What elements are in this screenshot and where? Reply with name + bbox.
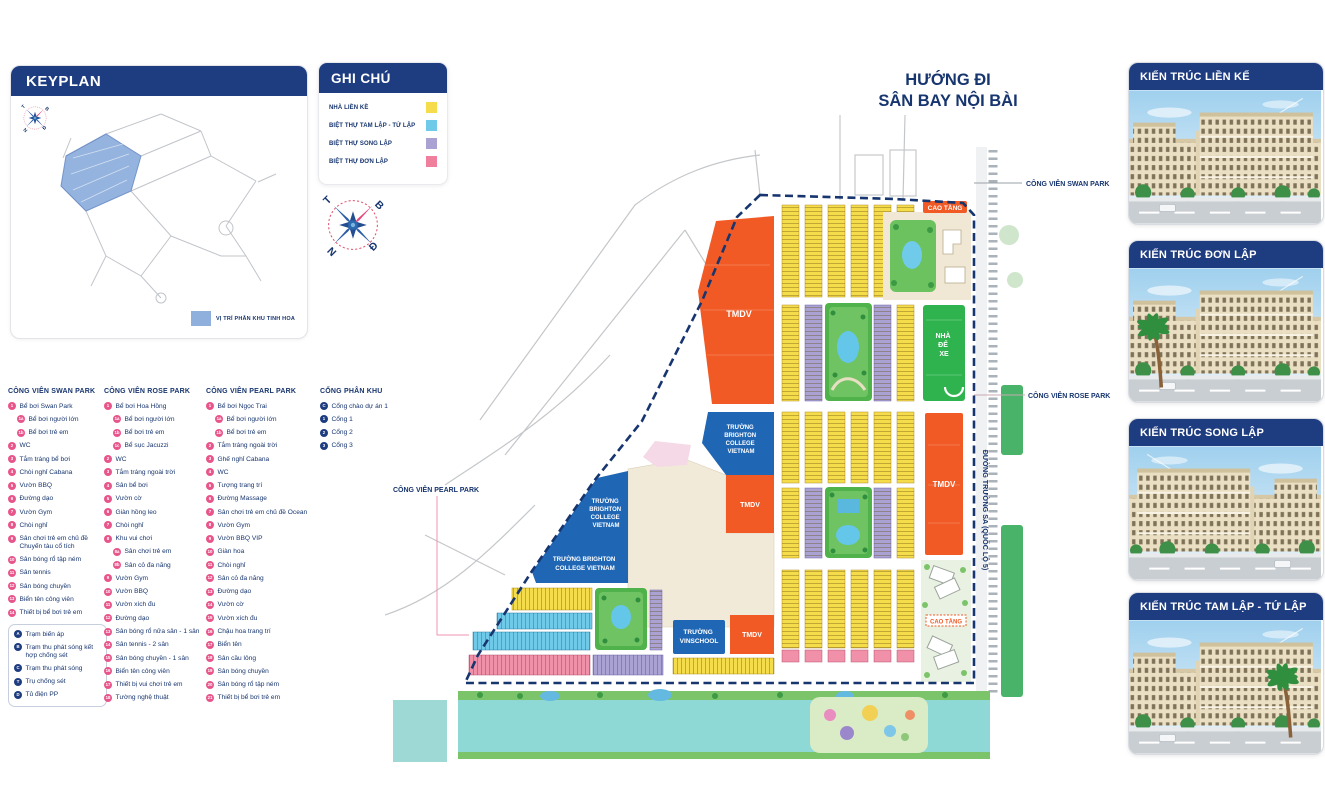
legend-item: ATrạm biến áp (14, 630, 102, 638)
legend-item-label: Vườn Gym (116, 574, 149, 582)
legend-item-badge: D (14, 691, 22, 699)
keyplan-legend-label: VỊ TRÍ PHÂN KHU TINH HOA (216, 316, 295, 322)
legend-item-badge: 16 (206, 628, 214, 636)
legend-column-swan-park: CÔNG VIÊN SWAN PARK 1Bể bơi Swan Park1aB… (8, 388, 102, 707)
legend-item-badge: 12 (8, 582, 16, 590)
legend-item: 17Thiết bị vui chơi trẻ em (104, 681, 204, 689)
legend-item: 9Sân chơi trẻ em chủ đề Chuyến tàu cổ tí… (8, 535, 102, 551)
pearl-park-leader-line (437, 496, 469, 635)
highway-name-label: ĐƯỜNG TRƯỜNG SA (QUỐC LỘ 5) (981, 450, 991, 571)
legend-item-badge: 4 (104, 482, 112, 490)
legend-column-title: CÔNG VIÊN PEARL PARK (206, 388, 318, 395)
legend-item-label: Bể bơi trẻ em (29, 429, 69, 437)
legend-item-label: Cổng 1 (332, 415, 353, 423)
legend-item-label: Bể bơi người lớn (227, 415, 277, 423)
legend-item-badge: 2 (104, 455, 112, 463)
legend-item: 19Sân bóng chuyền (206, 667, 318, 675)
keyplan-legend: VỊ TRÍ PHÂN KHU TINH HOA (191, 311, 295, 326)
legend-item-badge: 17 (206, 641, 214, 649)
legend-item-badge: 7 (8, 508, 16, 516)
legend-item: 17Biển tên (206, 641, 318, 649)
legend-item-label: Ghế nghỉ Cabana (218, 455, 270, 463)
legend-item: 3Tắm tráng ngoài trời (104, 468, 204, 476)
legend-item: 8bSân cỏ đa năng (113, 561, 204, 569)
legend-item-label: Thiết bị vui chơi trẻ em (116, 681, 183, 689)
legend-item-label: Vườn xích đu (218, 614, 258, 622)
legend-item: 5Tượng trang trí (206, 482, 318, 490)
architecture-card-title: KIẾN TRÚC SONG LẬP (1140, 427, 1264, 439)
legend-item: 1aBể bơi người lớn (215, 415, 318, 423)
legend-item-label: Sân tennis - 2 sân (116, 641, 169, 649)
legend-item-label: Đường Massage (218, 495, 267, 503)
legend-item: 11Chòi nghỉ (206, 561, 318, 569)
legend-item: 16Chậu hoa trang trí (206, 628, 318, 636)
legend-item-badge: 16 (104, 667, 112, 675)
legend-item-label: Vườn Gym (218, 521, 251, 529)
legend-item: 4Chòi nghỉ Cabana (8, 468, 102, 476)
legend-item: 1Bể bơi Swan Park (8, 402, 102, 410)
tree-cluster (999, 225, 1019, 245)
legend-item-label: Tủ điện PP (26, 691, 59, 699)
legend-item: TTrụ chống sét (14, 678, 102, 686)
legend-item: 1cBể sục Jacuzzi (113, 442, 204, 450)
legend-item: 18Sân cầu lông (206, 654, 318, 662)
legend-item-badge: 1b (17, 429, 25, 437)
legend-item-badge: 2 (320, 429, 328, 437)
cao-tang-label-south: CAO TẦNG (930, 619, 962, 626)
pocket-park-southwest (595, 588, 647, 650)
legend-item: 14Vườn cờ (206, 601, 318, 609)
legend-item-label: Sân cỏ đa năng (218, 574, 264, 582)
architecture-card-title: KIẾN TRÚC LIỀN KẾ (1140, 71, 1250, 83)
central-park-south (825, 487, 872, 558)
legend-item-label: Tường nghệ thuật (116, 694, 169, 702)
legend-list: 1Bể bơi Swan Park1aBể bơi người lớn1bBể … (8, 402, 102, 617)
legend-item-badge: 1b (113, 429, 121, 437)
legend-item-badge: 19 (206, 667, 214, 675)
architecture-card-header: KIẾN TRÚC LIỀN KẾ (1129, 63, 1323, 90)
legend-item-badge: B (14, 643, 22, 651)
legend-item-label: Trạm thu phát sóng (26, 664, 83, 672)
legend-item-label: Giàn hồng leo (116, 508, 157, 516)
legend-item-label: Sân tennis (20, 569, 51, 577)
architecture-card-header: KIẾN TRÚC ĐƠN LẬP (1129, 241, 1323, 268)
legend-item-badge: 5 (104, 495, 112, 503)
legend-item-label: Vườn xích đu (116, 601, 156, 609)
tree-cluster (1007, 272, 1023, 288)
legend-item-label: Trạm biến áp (26, 630, 65, 638)
legend-item: 20Sân bóng rổ tập ném (206, 681, 318, 689)
legend-item-badge: 1a (215, 415, 223, 423)
central-park-north (825, 303, 872, 401)
legend-item-badge: 1b (215, 429, 223, 437)
legend-item-label: Vườn BBQ (20, 482, 53, 490)
legend-row-label: BIỆT THỰ SONG LẬP (329, 141, 392, 147)
legend-item-badge: T (14, 678, 22, 686)
legend-item-badge: 12 (206, 574, 214, 582)
architecture-render (1129, 268, 1321, 402)
legend-item-label: Bể bơi Hoa Hồng (116, 402, 167, 410)
legend-item-badge: 10 (8, 556, 16, 564)
masterplan-poster: B T N Đ (0, 0, 1325, 800)
legend-item-badge: A (14, 630, 22, 638)
masterplan-map: TMDV (385, 55, 1120, 775)
legend-item: DTủ điện PP (14, 691, 102, 699)
legend-item: 6Đường dạo (8, 495, 102, 503)
water-plot (393, 700, 447, 762)
architecture-card-don-lap: KIẾN TRÚC ĐƠN LẬP (1128, 240, 1324, 403)
legend-item-label: Sân bóng rổ tập ném (20, 556, 82, 564)
legend-item-label: Cổng 3 (332, 442, 353, 450)
legend-item-badge: 10 (104, 588, 112, 596)
legend-item-badge: 13 (206, 588, 214, 596)
legend-row-label: BIỆT THỰ ĐƠN LẬP (329, 159, 388, 165)
legend-column-rose-park: CÔNG VIÊN ROSE PARK 1Bể bơi Hoa Hồng1aBể… (104, 388, 204, 707)
legend-item: 4Sân bể bơi (104, 482, 204, 490)
east-green-strip (1001, 525, 1023, 697)
legend-item-badge: 3 (104, 468, 112, 476)
legend-item: 12Đường dạo (104, 614, 204, 622)
legend-item: 13Biển tên công viên (8, 595, 102, 603)
legend-item: 13Sân bóng rổ nửa sân - 1 sân (104, 628, 204, 636)
legend-item: 2WC (104, 455, 204, 463)
legend-item: CTrạm thu phát sóng (14, 664, 102, 672)
legend-item-label: Sân bóng chuyền (20, 582, 71, 590)
legend-item-badge: 18 (206, 654, 214, 662)
legend-item: 9Vườn Gym (104, 574, 204, 582)
tmdv-label: TMDV (740, 502, 760, 509)
legend-item: 1bBể bơi trẻ em (113, 429, 204, 437)
legend-item-badge: 1a (113, 415, 121, 423)
legend-item: 14Thiết bị bể bơi trẻ em (8, 609, 102, 617)
legend-item: 8aSân chơi trẻ em (113, 548, 204, 556)
legend-item-label: Tắm tráng ngoài trời (218, 442, 278, 450)
legend-item-label: Thiết bị bể bơi trẻ em (218, 694, 281, 702)
utilities-legend-box: ATrạm biến ápBTrạm thu phát sóng kết hợp… (8, 624, 107, 707)
pearl-park-callout: CÔNG VIÊN PEARL PARK (393, 485, 479, 494)
legend-item: 16Biển tên công viên (104, 667, 204, 675)
legend-item-badge: 7 (206, 508, 214, 516)
legend-item-badge: 3 (8, 455, 16, 463)
legend-list: 1Bể bơi Ngọc Trai1aBể bơi người lớn1bBể … (206, 402, 318, 702)
legend-list: 1Bể bơi Hoa Hồng1aBể bơi người lớn1bBể b… (104, 402, 204, 702)
legend-item-badge: 20 (206, 681, 214, 689)
legend-item: 1bBể bơi trẻ em (17, 429, 102, 437)
legend-item-badge: 8 (206, 521, 214, 529)
legend-item: 4WC (206, 468, 318, 476)
canal-park (393, 689, 990, 762)
legend-item: 8Khu vui chơi (104, 535, 204, 543)
legend-item-badge: 8a (113, 548, 121, 556)
legend-item-label: Sân bóng rổ tập ném (218, 681, 280, 689)
legend-item-badge: C (14, 664, 22, 672)
architecture-card-header: KIẾN TRÚC TAM LẬP - TỨ LẬP (1129, 593, 1323, 620)
legend-item-badge: 1 (104, 402, 112, 410)
legend-item: 11Vườn xích đu (104, 601, 204, 609)
legend-item: 18Tường nghệ thuật (104, 694, 204, 702)
legend-item-badge: 11 (104, 601, 112, 609)
legend-item: 8Vườn Gym (206, 521, 318, 529)
legend-item-badge: 6 (8, 495, 16, 503)
legend-item-label: Sân chơi trẻ em (125, 548, 172, 556)
legend-item-label: Tượng trang trí (218, 482, 263, 490)
legend-item-label: Vườn BBQ VIP (218, 535, 263, 543)
legend-item: 10Giàn hoa (206, 548, 318, 556)
keyplan-title: KEYPLAN (26, 73, 101, 90)
legend-item-label: Bể bơi trẻ em (227, 429, 267, 437)
keyplan-header: KEYPLAN (11, 66, 307, 96)
legend-item-badge: 1c (113, 442, 121, 450)
legend-item-label: Chòi nghỉ (20, 521, 48, 529)
legend-item-badge: 9 (206, 535, 214, 543)
legend-item: 12Sân cỏ đa năng (206, 574, 318, 582)
legend-item-label: Cổng 2 (332, 429, 353, 437)
legend-item-label: Sân bóng chuyền - 1 sân (116, 654, 189, 662)
legend-item-label: Vườn Gym (20, 508, 53, 516)
rose-park-callout: CÔNG VIÊN ROSE PARK (1028, 391, 1110, 400)
legend-item-badge: 9 (104, 574, 112, 582)
legend-item-label: Bể sục Jacuzzi (125, 442, 169, 450)
legend-item-badge: 11 (8, 569, 16, 577)
architecture-render (1129, 446, 1321, 580)
legend-item-badge: 9 (8, 535, 16, 543)
legend-item-badge: 13 (8, 595, 16, 603)
legend-item-badge: 14 (206, 601, 214, 609)
legend-item: 7Sân chơi trẻ em chủ đề Ocean (206, 508, 318, 516)
legend-item-label: Sân chơi trẻ em chủ đề Chuyến tàu cổ tíc… (20, 535, 103, 551)
legend-item: 11Sân tennis (8, 569, 102, 577)
architecture-render (1129, 90, 1321, 224)
legend-item-label: Vườn cờ (218, 601, 244, 609)
legend-item-badge: 13 (104, 628, 112, 636)
legend-item-badge: 6 (206, 495, 214, 503)
legend-item-label: Chòi nghỉ (218, 561, 246, 569)
legend-item-badge: 3 (320, 442, 328, 450)
legend-item-label: Đường dạo (116, 614, 150, 622)
legend-item: 9Vườn BBQ VIP (206, 535, 318, 543)
legend-item-label: Chòi nghỉ (116, 521, 144, 529)
legend-item-badge: 17 (104, 681, 112, 689)
legend-item: 2WC (8, 442, 102, 450)
pink-area (643, 441, 691, 467)
direction-heading-line2: SÂN BAY NỘI BÀI (878, 91, 1017, 110)
legend-item: 6Đường Massage (206, 495, 318, 503)
legend-item-badge: 10 (206, 548, 214, 556)
legend-item-label: Bể bơi trẻ em (125, 429, 165, 437)
legend-item-badge: 3 (206, 455, 214, 463)
legend-item-badge: 14 (8, 609, 16, 617)
tmdv-label: TMDV (933, 480, 956, 489)
legend-item-label: WC (20, 442, 31, 450)
highrise-zone-north: CAO TẦNG (883, 201, 971, 300)
legend-row-label: NHÀ LIỀN KỀ (329, 105, 368, 111)
legend-item-label: Bể bơi Swan Park (20, 402, 73, 410)
keyplan-compass-icon (21, 104, 51, 135)
legend-item-badge: 15 (206, 614, 214, 622)
architecture-card-title: KIẾN TRÚC ĐƠN LẬP (1140, 249, 1257, 261)
legend-item-badge: 15 (104, 654, 112, 662)
legend-item-label: Sân bóng chuyền (218, 667, 269, 675)
legend-item-badge: 4 (8, 468, 16, 476)
legend-item-badge: 6 (104, 508, 112, 516)
legend-item-label: Tắm tráng bể bơi (20, 455, 71, 463)
legend-item: 10Sân bóng rổ tập ném (8, 556, 102, 564)
legend-item-label: Sân bể bơi (116, 482, 148, 490)
legend-item-badge: 2 (8, 442, 16, 450)
legend-item-badge: 12 (104, 614, 112, 622)
legend-item-label: Bể bơi người lớn (125, 415, 175, 423)
legend-item: 15Vườn xích đu (206, 614, 318, 622)
legend-item-label: Cổng chào dự án 1 (332, 402, 388, 410)
architecture-card-title: KIẾN TRÚC TAM LẬP - TỨ LẬP (1140, 601, 1307, 613)
legend-item-badge: 5 (8, 482, 16, 490)
architecture-card-header: KIẾN TRÚC SONG LẬP (1129, 419, 1323, 446)
legend-item-badge: 4 (206, 468, 214, 476)
legend-item-badge: 8b (113, 561, 121, 569)
legend-item: 14Sân tennis - 2 sân (104, 641, 204, 649)
legend-item: 13Đường dạo (206, 588, 318, 596)
legend-item: 7Chòi nghỉ (104, 521, 204, 529)
legend-item-badge: 18 (104, 694, 112, 702)
legend-item-label: Biển tên công viên (20, 595, 74, 603)
housing-strips-row3 (782, 412, 914, 483)
legend-item: 15Sân bóng chuyền - 1 sân (104, 654, 204, 662)
legend-item-badge: 11 (206, 561, 214, 569)
legend-item-label: WC (116, 455, 127, 463)
housing-strips-bottom (782, 570, 914, 662)
legend-item: 1bBể bơi trẻ em (215, 429, 318, 437)
parking-garage-block: NHÀ ĐỂ XE (923, 305, 965, 401)
legend-item-label: Trụ chống sét (26, 678, 66, 686)
compass-rose (318, 190, 388, 260)
legend-item: 7Vườn Gym (8, 508, 102, 516)
highway-road (976, 147, 987, 695)
keyplan-map: VỊ TRÍ PHÂN KHU TINH HOA (11, 96, 307, 336)
legend-column-title: CÔNG VIÊN SWAN PARK (8, 388, 102, 395)
legend-item-badge: 1 (8, 402, 16, 410)
architecture-render (1129, 620, 1321, 754)
swan-park-callout: CÔNG VIÊN SWAN PARK (1026, 179, 1110, 188)
legend-column-title: CÔNG VIÊN ROSE PARK (104, 388, 204, 395)
legend-item-badge: 1 (206, 402, 214, 410)
tmdv-label: TMDV (726, 309, 752, 319)
legend-item: 1aBể bơi người lớn (113, 415, 204, 423)
legend-item-label: WC (218, 468, 229, 476)
legend-item: 21Thiết bị bể bơi trẻ em (206, 694, 318, 702)
legend-item: 2Tắm tráng ngoài trời (206, 442, 318, 450)
legend-item-label: Khu vui chơi (116, 535, 153, 543)
architecture-card-tam-lap-tu-lap: KIẾN TRÚC TAM LẬP - TỨ LẬP (1128, 592, 1324, 755)
legend-item-badge: 1 (320, 415, 328, 423)
legend-item-label: Thiết bị bể bơi trẻ em (20, 609, 83, 617)
vinschool-block (673, 620, 725, 654)
legend-title: GHI CHÚ (331, 71, 391, 86)
legend-item-label: Sân cỏ đa năng (125, 561, 171, 569)
legend-item-badge: 2 (206, 442, 214, 450)
legend-column-pearl-park: CÔNG VIÊN PEARL PARK 1Bể bơi Ngọc Trai1a… (206, 388, 318, 707)
direction-heading-line1: HƯỚNG ĐI (905, 70, 991, 89)
legend-item-badge: 21 (206, 694, 214, 702)
legend-item-badge: 14 (104, 641, 112, 649)
legend-item-badge: C (320, 402, 328, 410)
legend-item-label: Biển tên (218, 641, 242, 649)
legend-item: 1aBể bơi người lớn (17, 415, 102, 423)
legend-item-label: Trạm thu phát sóng kết hợp chống sét (26, 643, 103, 659)
legend-item-badge: 1a (17, 415, 25, 423)
legend-item-label: Đường dạo (218, 588, 252, 596)
legend-item-badge: 8 (104, 535, 112, 543)
legend-item-label: Chậu hoa trang trí (218, 628, 271, 636)
legend-item: 10Vườn BBQ (104, 588, 204, 596)
legend-item: BTrạm thu phát sóng kết hợp chống sét (14, 643, 102, 659)
legend-item: 5Vườn BBQ (8, 482, 102, 490)
legend-item: 5Vườn cờ (104, 495, 204, 503)
tmdv-label: TMDV (742, 632, 762, 639)
legend-item: 6Giàn hồng leo (104, 508, 204, 516)
legend-item: 3Ghế nghỉ Cabana (206, 455, 318, 463)
legend-item-badge: 8 (8, 521, 16, 529)
legend-item: 1Bể bơi Ngọc Trai (206, 402, 318, 410)
legend-item-label: Bể bơi người lớn (29, 415, 79, 423)
keyplan-legend-swatch (191, 311, 211, 326)
architecture-card-song-lap: KIẾN TRÚC SONG LẬP (1128, 418, 1324, 581)
legend-item-label: Vườn BBQ (116, 588, 149, 596)
architecture-card-lien-ke: KIẾN TRÚC LIỀN KẾ (1128, 62, 1324, 225)
legend-item-badge: 5 (206, 482, 214, 490)
legend-item-badge: 7 (104, 521, 112, 529)
keyplan-sketch (11, 96, 305, 304)
legend-item-label: Bể bơi Ngọc Trai (218, 402, 267, 410)
legend-item-label: Sân chơi trẻ em chủ đề Ocean (218, 508, 308, 516)
keyplan-highlight-zone (61, 134, 141, 211)
legend-item: 12Sân bóng chuyền (8, 582, 102, 590)
legend-item: 1Bể bơi Hoa Hồng (104, 402, 204, 410)
legend-item-label: Sân bóng rổ nửa sân - 1 sân (116, 628, 200, 636)
legend-item-label: Tắm tráng ngoài trời (116, 468, 176, 476)
highrise-zone-south: CAO TẦNG (921, 560, 971, 682)
legend-item-label: Vườn cờ (116, 495, 142, 503)
keyplan-panel: KEYPLAN VỊ TRÍ PHÂN KHU TINH HOA (10, 65, 308, 339)
legend-item-label: Giàn hoa (218, 548, 245, 556)
legend-item-label: Biển tên công viên (116, 667, 170, 675)
legend-item: 3Tắm tráng bể bơi (8, 455, 102, 463)
legend-item-label: Chòi nghỉ Cabana (20, 468, 73, 476)
legend-item-label: Sân cầu lông (218, 654, 257, 662)
legend-item: 8Chòi nghỉ (8, 521, 102, 529)
legend-item-label: Đường dạo (20, 495, 54, 503)
